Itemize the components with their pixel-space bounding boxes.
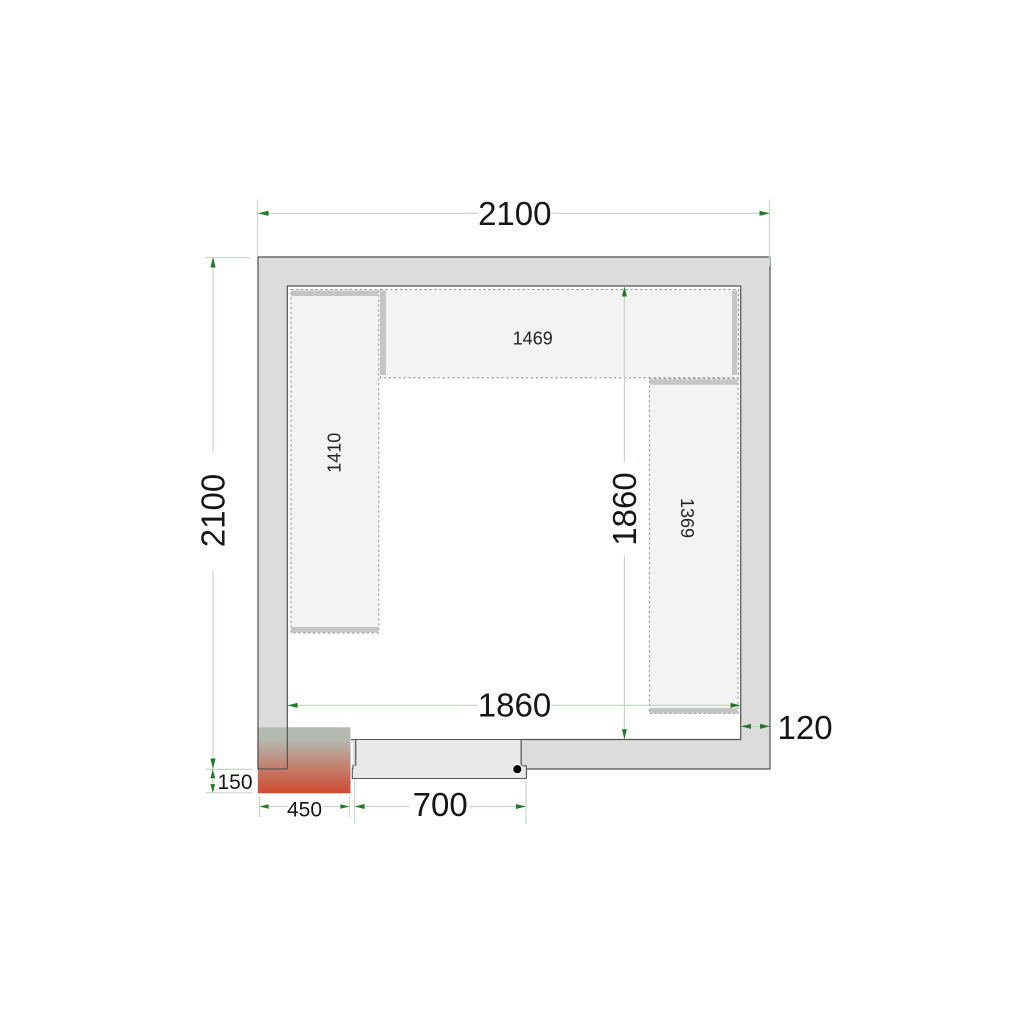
svg-text:1369: 1369 [677, 498, 697, 538]
svg-text:700: 700 [413, 786, 468, 823]
svg-text:2100: 2100 [195, 474, 232, 547]
svg-text:450: 450 [287, 799, 322, 822]
svg-text:1410: 1410 [325, 433, 345, 473]
svg-text:1860: 1860 [606, 472, 643, 545]
svg-text:1860: 1860 [478, 686, 551, 723]
svg-text:120: 120 [778, 709, 833, 746]
svg-text:2100: 2100 [478, 195, 551, 232]
svg-text:150: 150 [218, 771, 253, 794]
svg-text:1469: 1469 [513, 329, 553, 349]
